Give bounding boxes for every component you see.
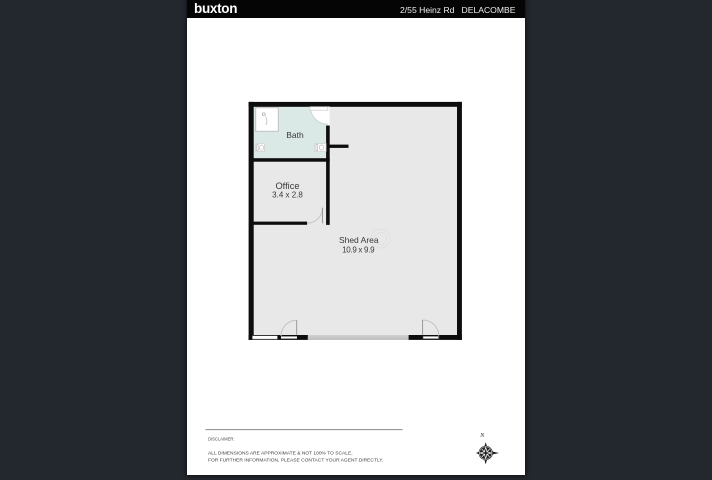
svg-text:Office: Office — [275, 181, 299, 191]
svg-text:3.4 x 2.8: 3.4 x 2.8 — [272, 190, 303, 199]
svg-text:10.9 x 9.9: 10.9 x 9.9 — [342, 246, 375, 255]
svg-text:Shed Area: Shed Area — [339, 235, 379, 245]
svg-text:Bath: Bath — [286, 130, 304, 140]
svg-text:N: N — [479, 433, 485, 439]
